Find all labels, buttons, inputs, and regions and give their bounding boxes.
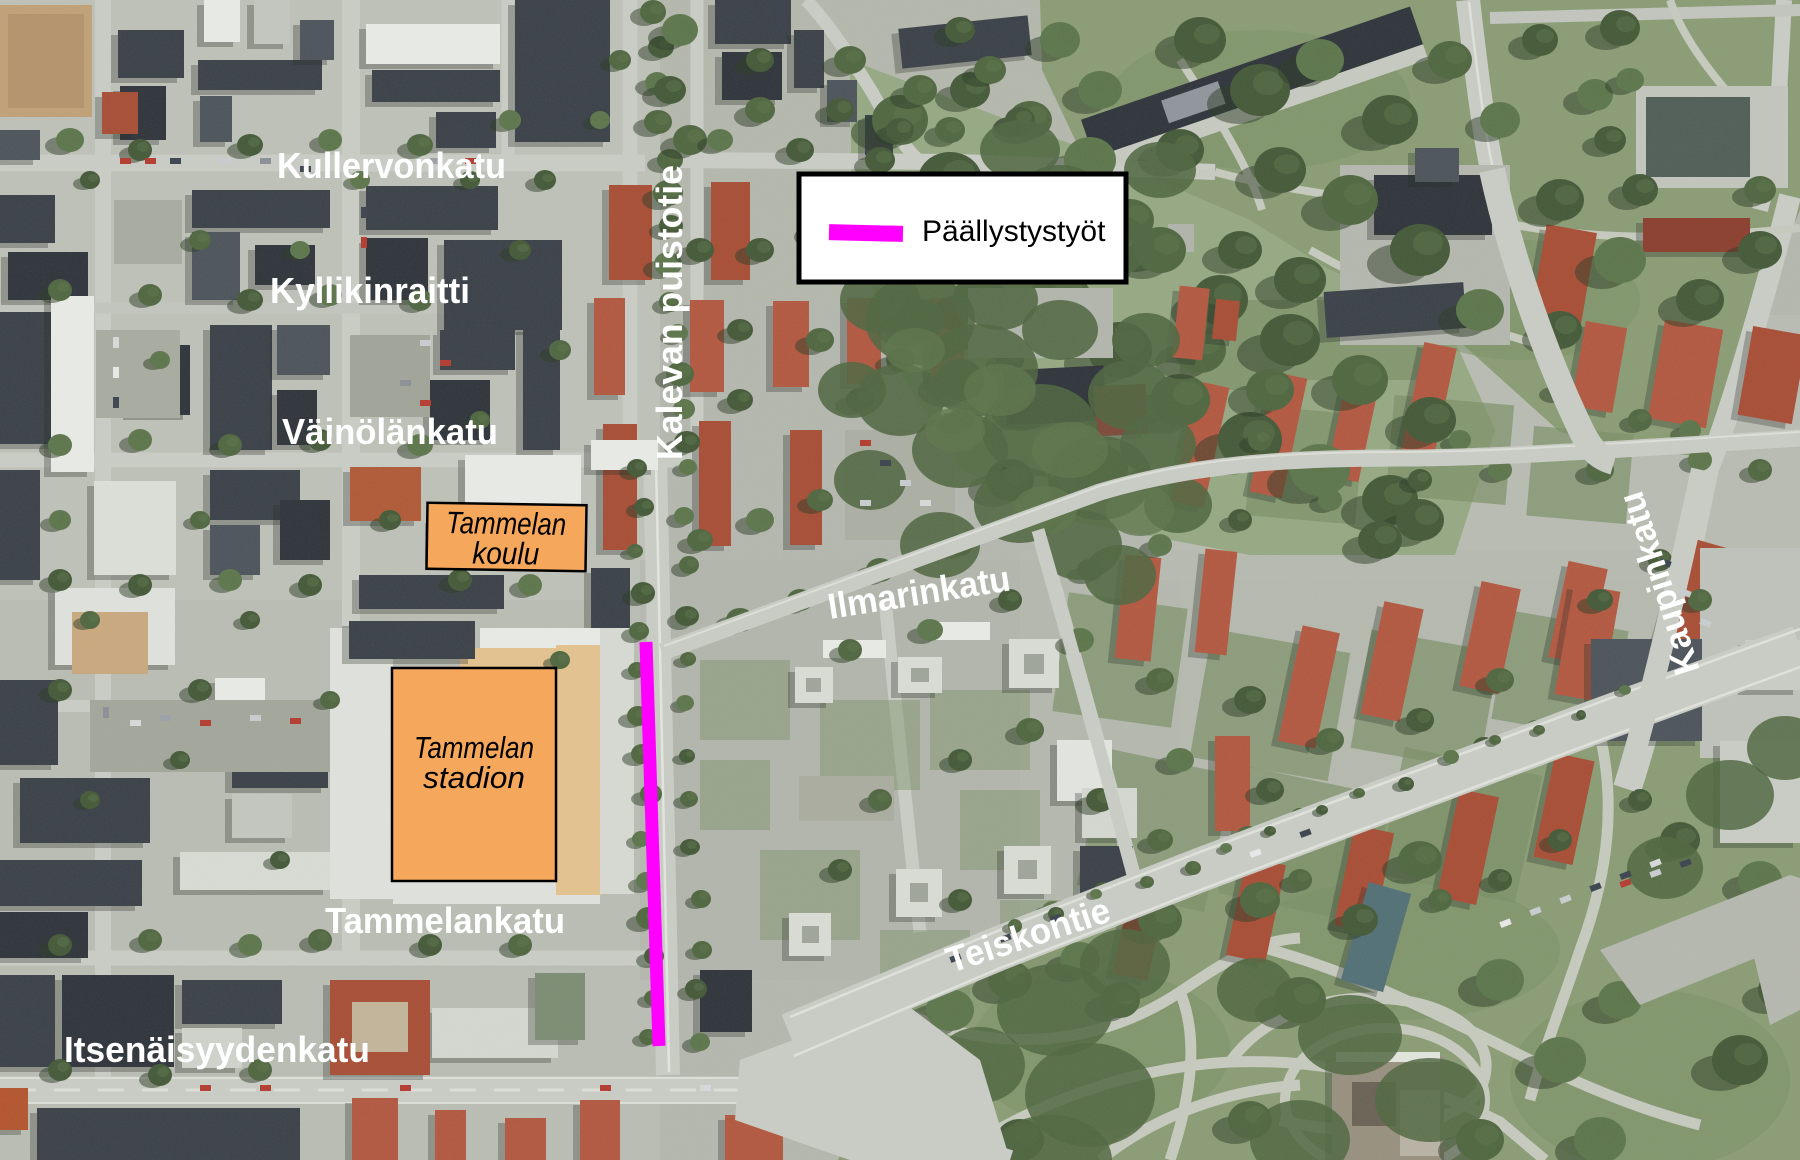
svg-text:Kyllikinraitti: Kyllikinraitti [270, 270, 470, 311]
svg-text:stadion: stadion [423, 760, 525, 795]
svg-text:Väinölänkatu: Väinölänkatu [282, 411, 498, 452]
svg-text:Itsenäisyydenkatu: Itsenäisyydenkatu [64, 1029, 370, 1070]
svg-text:koulu: koulu [472, 535, 540, 571]
svg-text:Kullervonkatu: Kullervonkatu [277, 145, 506, 186]
svg-text:Päällystystyöt: Päällystystyöt [922, 215, 1106, 248]
svg-text:Tammelankatu: Tammelankatu [325, 900, 565, 941]
svg-text:Kalevan puistotie: Kalevan puistotie [649, 165, 690, 460]
